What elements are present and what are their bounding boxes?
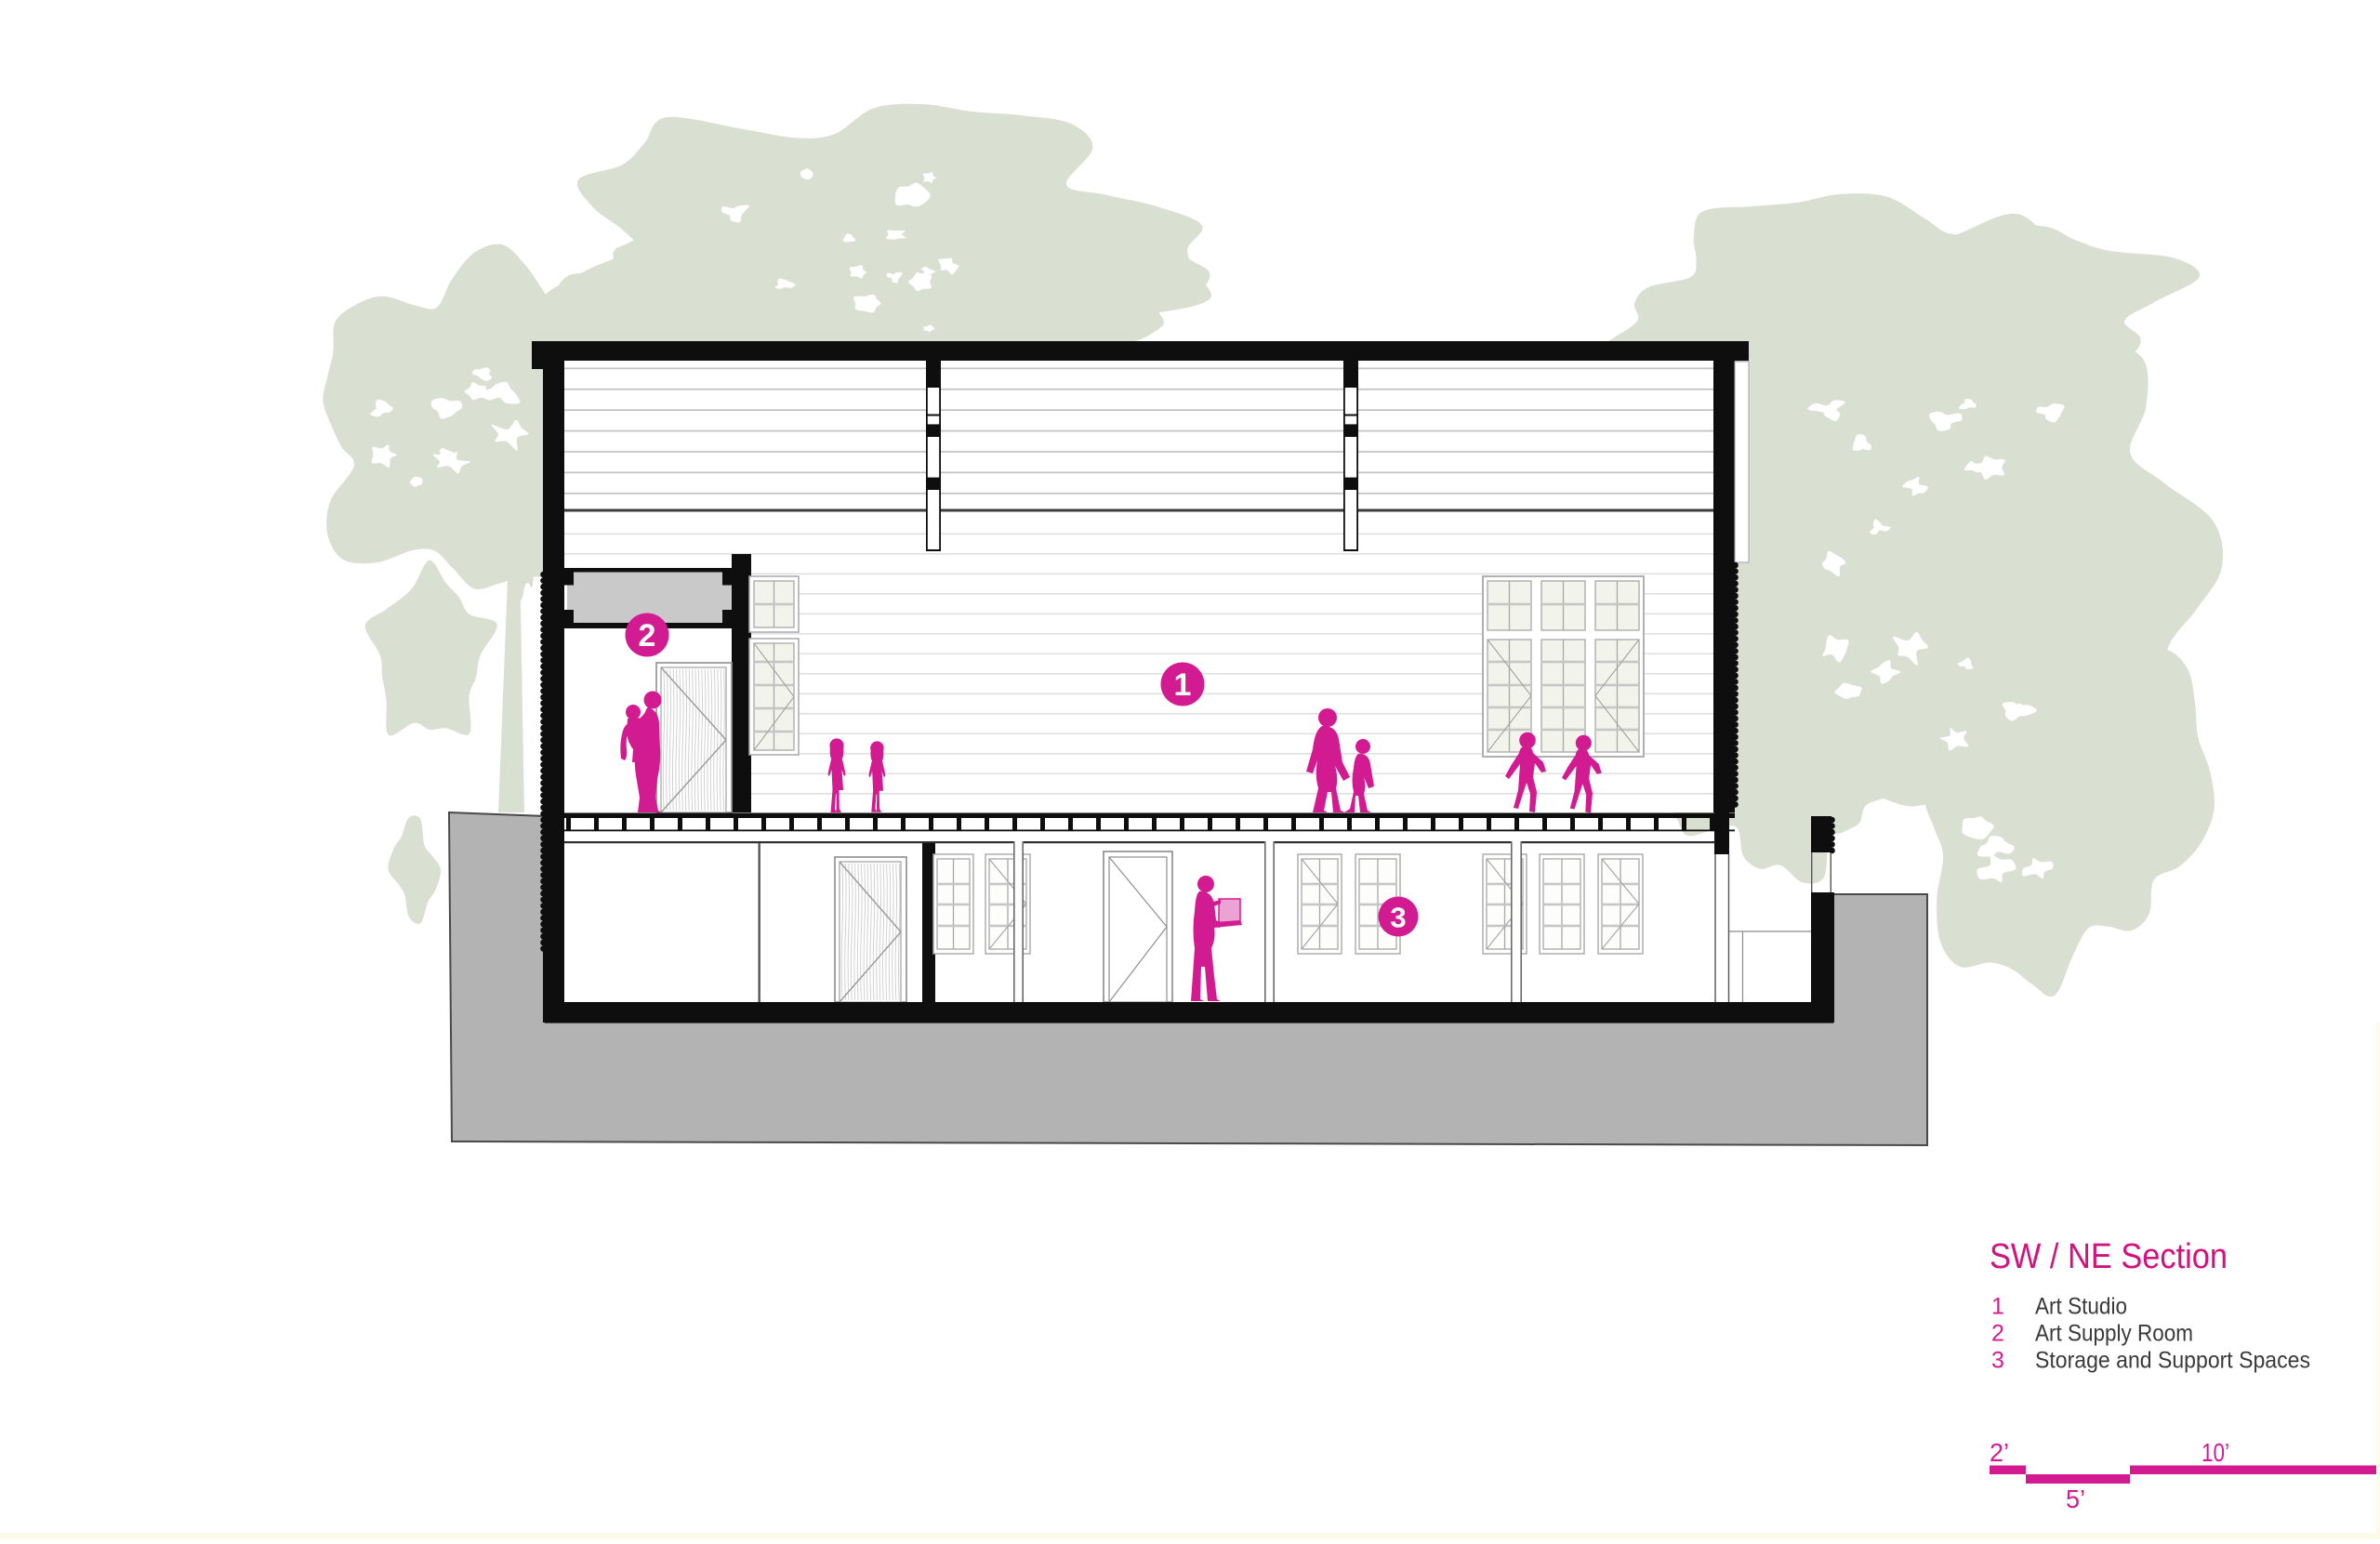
svg-text:Art Studio: Art Studio [2035, 1294, 2127, 1320]
svg-text:10’: 10’ [2201, 1438, 2229, 1467]
svg-text:SW / NE Section: SW / NE Section [1990, 1237, 2228, 1276]
svg-text:1: 1 [1991, 1294, 2004, 1320]
svg-text:2: 2 [639, 618, 656, 653]
svg-text:Storage and Support Spaces: Storage and Support Spaces [2035, 1348, 2310, 1374]
svg-text:2’: 2’ [1990, 1438, 2009, 1467]
svg-text:3: 3 [1991, 1348, 2004, 1374]
svg-text:5’: 5’ [2066, 1485, 2085, 1513]
svg-text:Art Supply Room: Art Supply Room [2035, 1321, 2193, 1347]
svg-text:1: 1 [1174, 667, 1192, 703]
svg-text:2: 2 [1991, 1321, 2004, 1347]
svg-text:3: 3 [1390, 902, 1406, 934]
